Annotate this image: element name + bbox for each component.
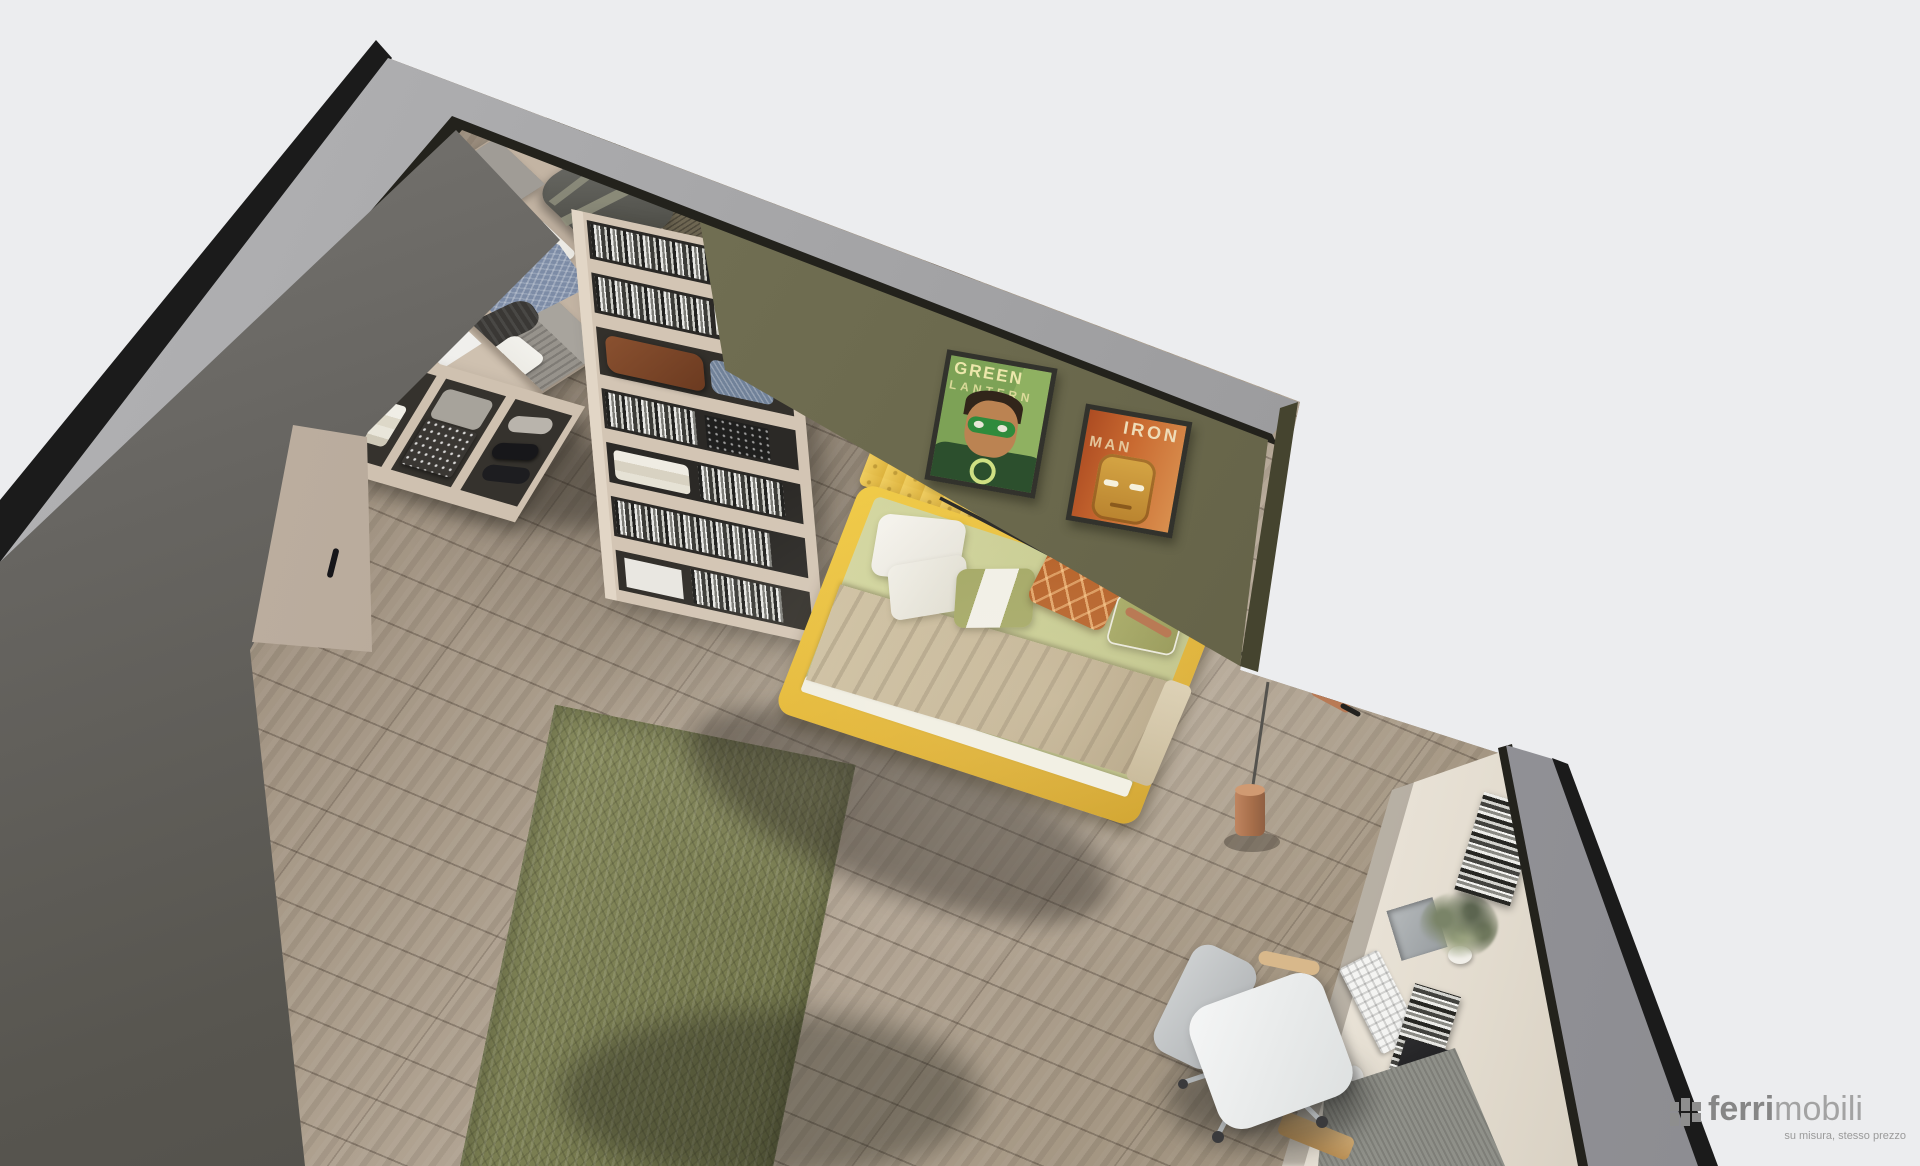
floor-cast-shadow <box>560 1010 980 1166</box>
ferrimobili-grid-icon <box>1670 1096 1702 1128</box>
poster-green-lantern: GREEN LANTERN <box>924 349 1057 498</box>
lamp-stem <box>1252 682 1268 792</box>
bedroom-render: GREEN LANTERN IRON MAN ferrimobili <box>0 0 1920 1166</box>
brand-name: ferrimobili <box>1708 1088 1906 1130</box>
office-chair <box>1140 930 1400 1166</box>
poster-iron-man: IRON MAN <box>1066 404 1193 539</box>
brand-name-light: mobili <box>1774 1090 1863 1128</box>
im-helmet <box>1089 452 1158 527</box>
brand-tagline: su misura, stesso prezzo <box>1708 1130 1906 1142</box>
brand-name-bold: ferri <box>1708 1090 1774 1128</box>
lamp-base-top <box>1235 784 1265 796</box>
brand-watermark: ferrimobili su misura, stesso prezzo <box>1670 1088 1906 1158</box>
plant-foliage <box>1420 892 1498 958</box>
lamp-head-tip <box>1343 706 1358 714</box>
